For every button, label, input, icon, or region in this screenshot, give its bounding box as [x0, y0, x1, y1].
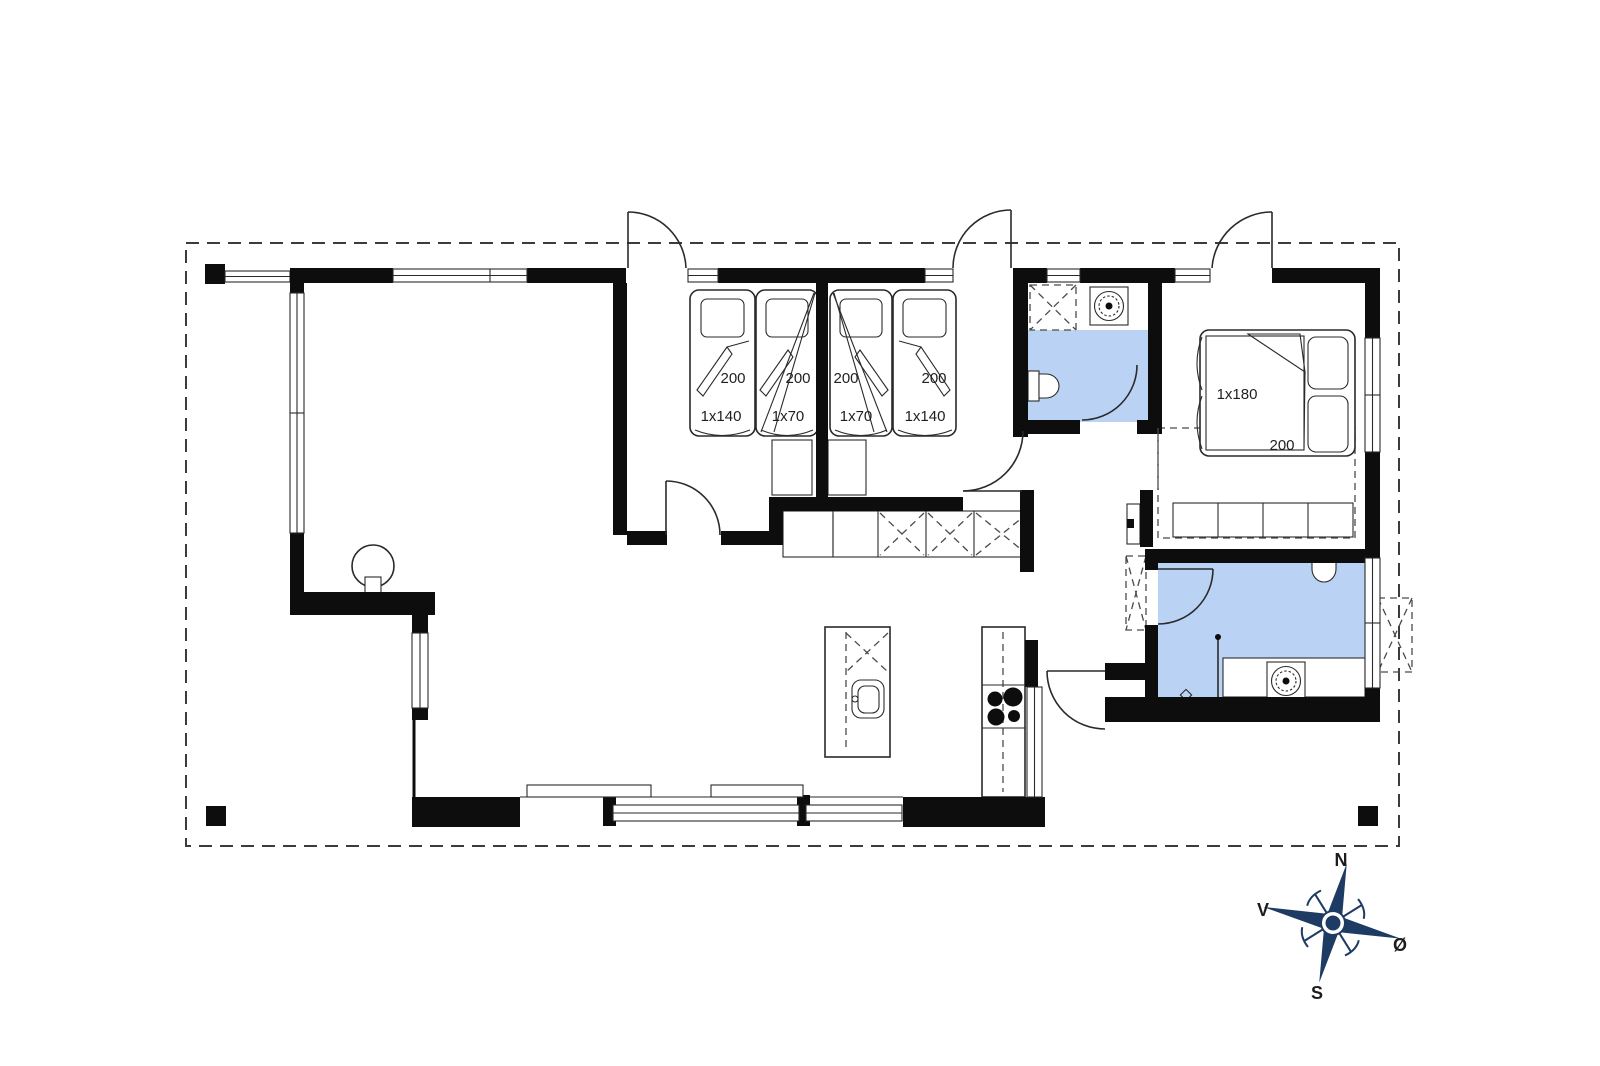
- hall-closet-row: [783, 511, 1030, 557]
- master-wardrobe-row: [1173, 503, 1353, 537]
- door-swing-arc: [666, 481, 720, 535]
- wall: [290, 268, 304, 295]
- wall: [769, 497, 783, 545]
- window-living-top: [393, 269, 527, 282]
- wall-living-bedroom1: [613, 283, 627, 535]
- bed-length-label: 200: [1269, 437, 1294, 454]
- sink-faucet: [852, 696, 858, 702]
- bed-width-label: 1x140: [905, 408, 946, 425]
- wall: [290, 533, 304, 595]
- bedroom2-furniture: [828, 290, 956, 495]
- floor-plan-svg: 200 200 200 200 1x140 1x70 1x70 1x140 1x…: [0, 0, 1600, 1066]
- window-living-left-lower: [412, 633, 428, 708]
- wall: [412, 708, 428, 720]
- door-hall-terrace: [1047, 671, 1105, 729]
- compass-label-east: Ø: [1393, 935, 1407, 955]
- window-master-right: [1365, 338, 1380, 452]
- entry-door-bedroom1: [628, 212, 686, 268]
- wall: [290, 268, 393, 283]
- wall: [1105, 663, 1147, 680]
- wall: [1025, 640, 1038, 687]
- post-top-left: [205, 264, 225, 284]
- wall-bathroom-bedroom3: [1148, 283, 1162, 434]
- wall: [1080, 268, 1175, 283]
- bed-width-label: 1x70: [840, 408, 873, 425]
- door-swing-arc: [963, 431, 1023, 491]
- window-bathroom-large-right: [1365, 558, 1380, 688]
- compass-label-west: V: [1257, 900, 1269, 920]
- toilet-tank: [1028, 371, 1039, 401]
- post-bottom-left: [206, 806, 226, 826]
- floor-plan-page: 200 200 200 200 1x140 1x70 1x70 1x140 1x…: [0, 0, 1600, 1066]
- door-swing-arc: [628, 212, 686, 268]
- toilet-bowl: [1312, 562, 1336, 582]
- window-master-top: [1175, 269, 1210, 282]
- wall: [412, 797, 520, 827]
- wall: [1365, 688, 1380, 722]
- window-bedroom1-top: [688, 269, 718, 282]
- wall-bedroom-divider: [816, 283, 828, 511]
- wall: [1013, 268, 1047, 283]
- kitchen-sink-icon: [852, 680, 884, 718]
- wall: [627, 531, 667, 545]
- wall: [1147, 549, 1365, 563]
- wall: [903, 797, 1045, 827]
- window-bathroom-small-top: [1047, 269, 1080, 282]
- bed-length-label: 200: [785, 370, 810, 387]
- wall-hall-bedroom3-stub: [1140, 490, 1153, 547]
- wall: [412, 615, 428, 633]
- kitchen: [825, 627, 1025, 797]
- wall: [1365, 452, 1380, 558]
- bed-pillow: [840, 299, 882, 337]
- nightstand: [828, 440, 866, 495]
- door-swing-arc: [1212, 212, 1272, 268]
- compass-rose: N S V Ø: [1246, 844, 1419, 1003]
- counter-outline: [982, 627, 1025, 797]
- bed-width-label: 1x70: [772, 408, 805, 425]
- window-bedroom2-top: [925, 269, 953, 282]
- wall: [1145, 625, 1158, 697]
- sliding-panel: [711, 785, 803, 797]
- sliding-door-south: [527, 785, 902, 821]
- bed-pillow: [1308, 337, 1348, 389]
- compass-hook: [1345, 938, 1359, 958]
- washbasin-icon: [1267, 662, 1305, 700]
- entry-door-master: [1212, 212, 1272, 268]
- toilet-bowl: [1039, 374, 1059, 398]
- wall: [718, 268, 925, 283]
- bed-pillow: [701, 299, 744, 337]
- door-swing-arc: [953, 210, 1011, 268]
- wall-bathroom-small-left: [1013, 283, 1028, 437]
- wall: [290, 592, 435, 615]
- compass-label-north: N: [1335, 850, 1348, 870]
- entry-door-bedroom2: [953, 210, 1011, 268]
- wall: [1272, 268, 1380, 283]
- living-room-furniture: [352, 545, 394, 594]
- bed-length-label: 200: [720, 370, 745, 387]
- compass-hook: [1307, 888, 1321, 908]
- post-bottom-right: [1358, 806, 1378, 826]
- bed-width-label: 1x140: [701, 408, 742, 425]
- bedroom1-furniture: [690, 290, 818, 495]
- washbasin-icon: [1090, 287, 1128, 325]
- nightstand: [772, 440, 812, 495]
- hall-fixture: [1127, 504, 1140, 544]
- burner: [1004, 688, 1023, 707]
- compass-label-south: S: [1311, 983, 1323, 1003]
- door-bedroom2-hall: [963, 431, 1023, 491]
- sink-basin: [858, 686, 879, 713]
- bed-pillow: [903, 299, 946, 337]
- wood-stove-flue: [365, 577, 381, 594]
- door-bedroom1-living: [666, 481, 720, 535]
- burner: [1008, 710, 1020, 722]
- bed-length-label: 200: [921, 370, 946, 387]
- closet-outline: [783, 511, 1030, 557]
- compass-star: [1246, 844, 1419, 1002]
- kitchen-island: [825, 627, 890, 757]
- basin-drain: [1283, 678, 1290, 685]
- window-kitchen-east: [1027, 687, 1042, 797]
- wall: [527, 268, 626, 283]
- bed-pillow: [1308, 396, 1348, 452]
- door-swing-arc: [1047, 671, 1105, 729]
- sliding-panel: [527, 785, 651, 797]
- burner: [988, 709, 1005, 726]
- wall-bedroom2-hall: [783, 497, 963, 511]
- burner: [988, 692, 1003, 707]
- bed-length-label: 200: [833, 370, 858, 387]
- wall: [1365, 268, 1380, 338]
- shower-screen-post: [1215, 634, 1221, 640]
- basin-drain: [1106, 303, 1113, 310]
- bed-pillow: [766, 299, 808, 337]
- kitchen-counter: [982, 627, 1025, 797]
- wall-hall-kitchen-stub: [1020, 490, 1034, 572]
- window-living-left: [290, 293, 304, 533]
- wall: [1105, 697, 1380, 722]
- bed-width-label: 1x180: [1217, 386, 1258, 403]
- fixture-dot: [1127, 519, 1134, 528]
